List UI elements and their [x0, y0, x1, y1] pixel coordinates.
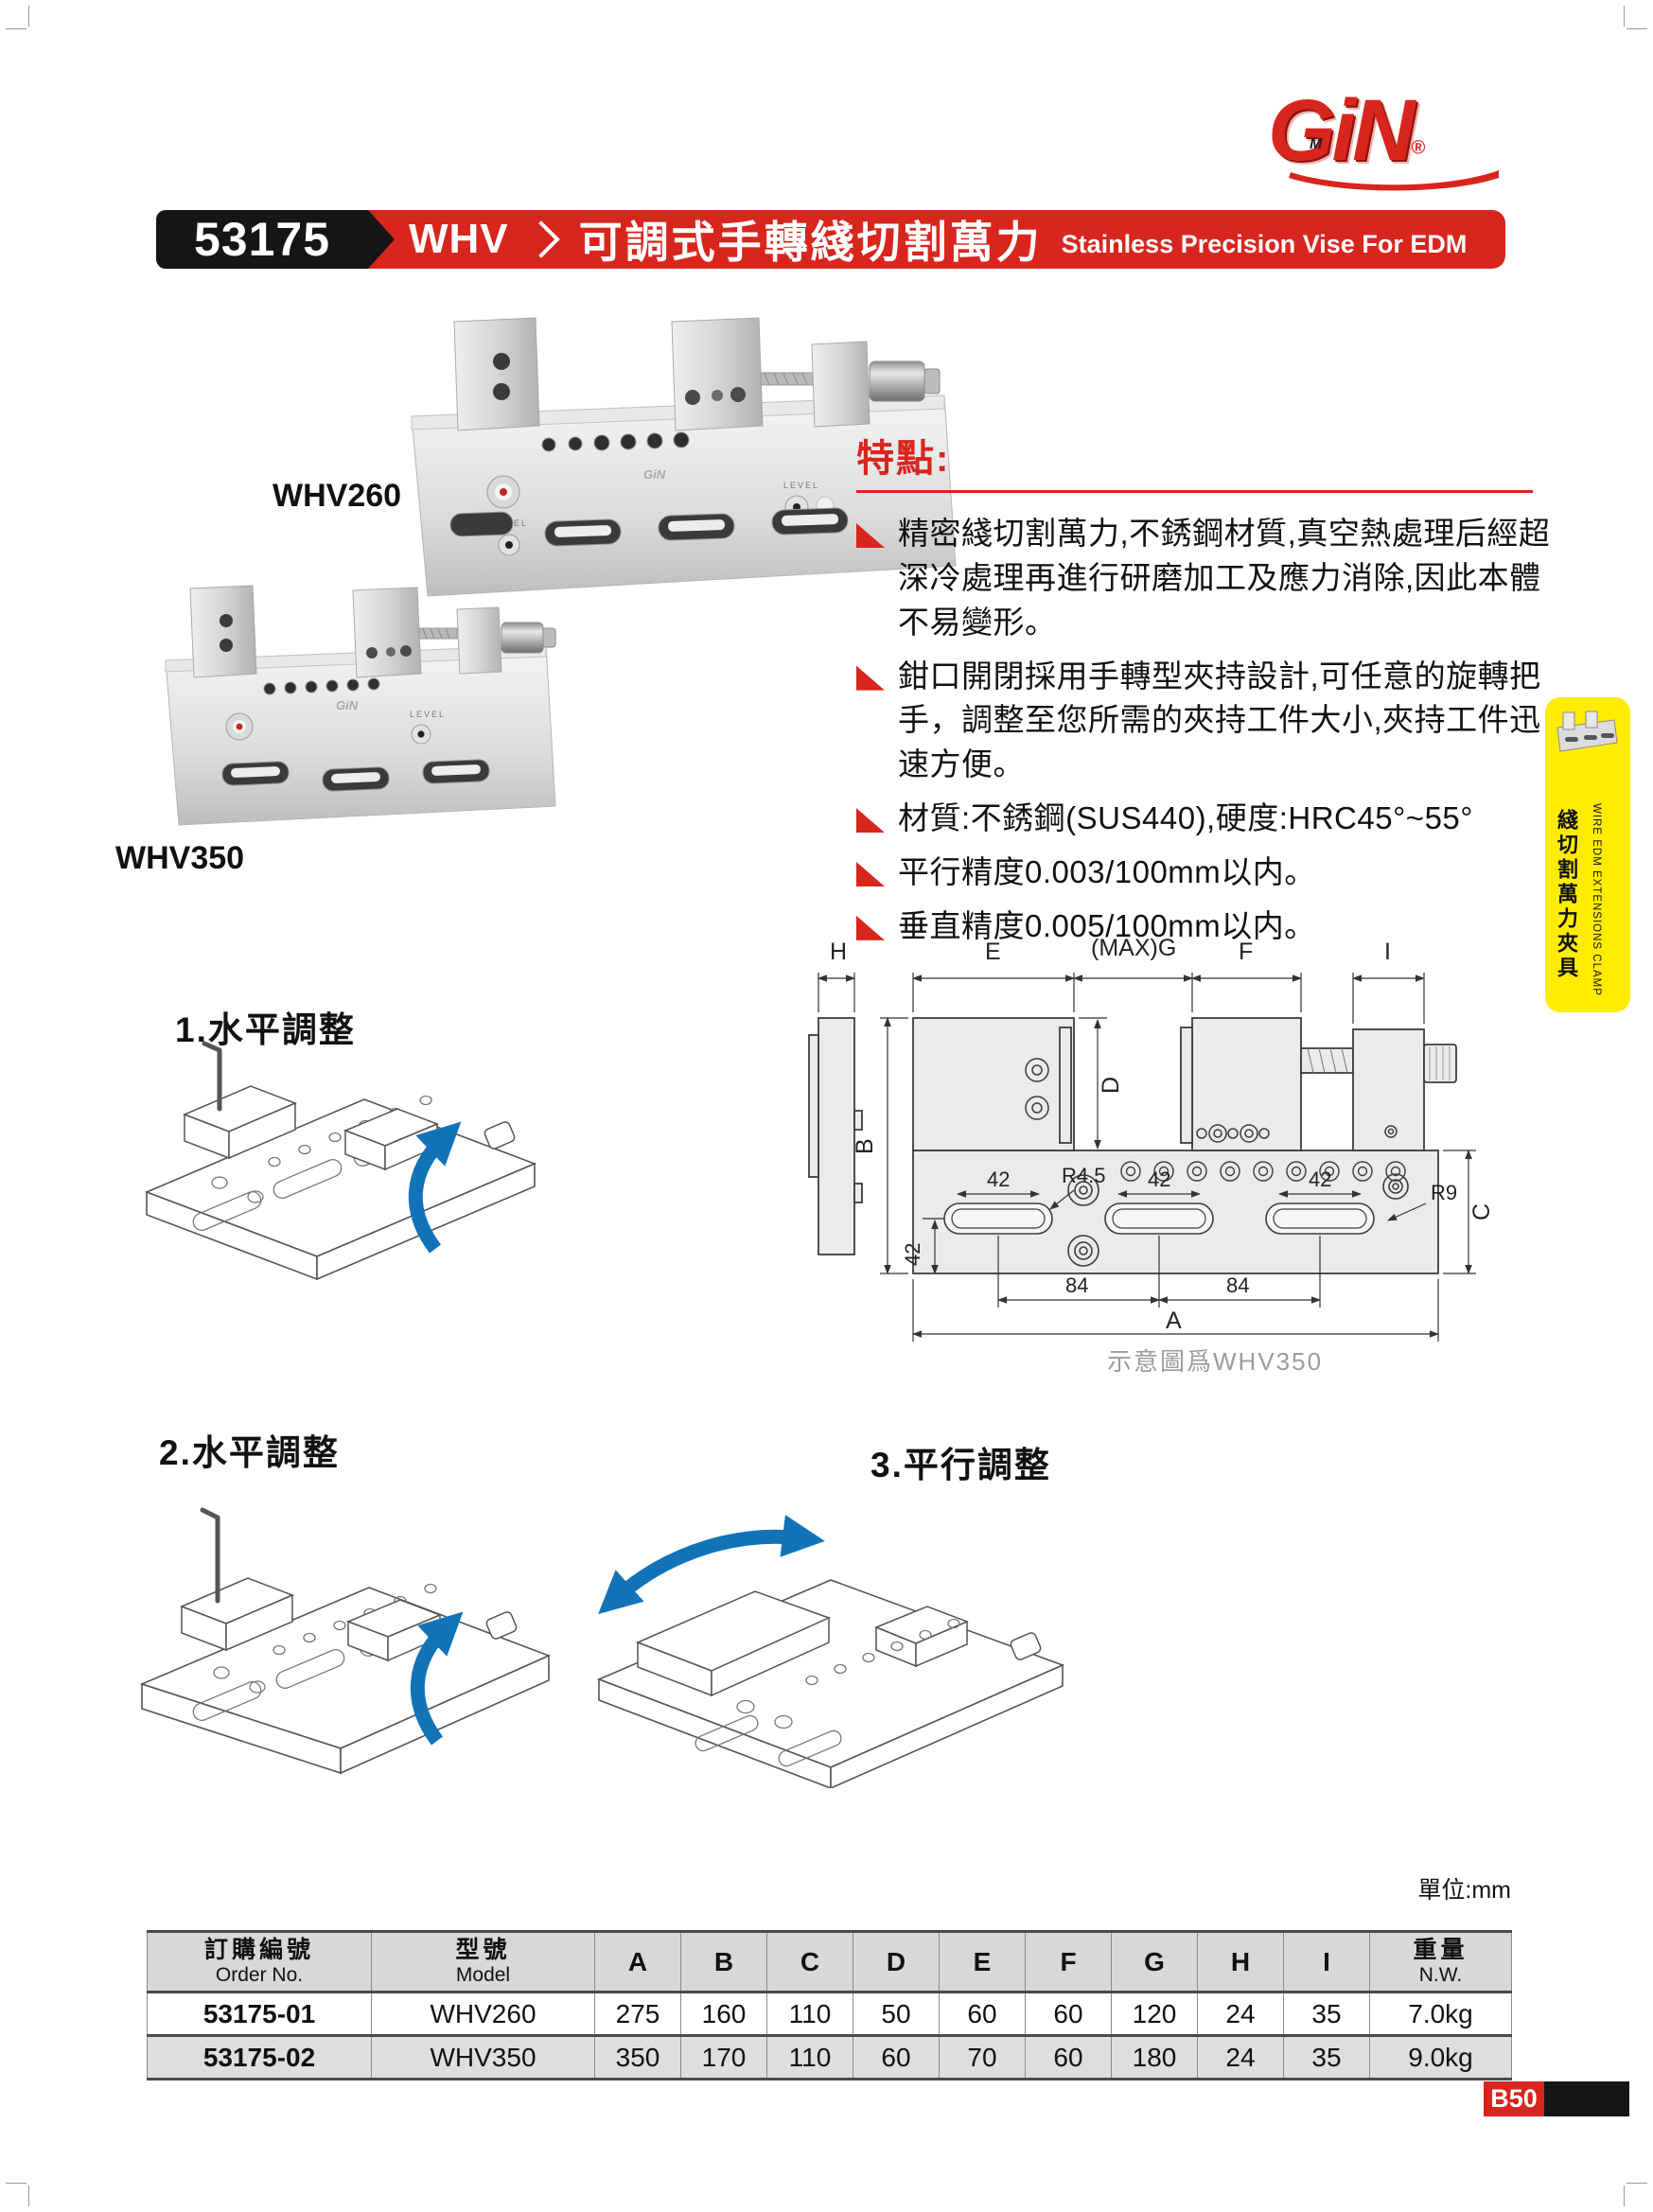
col-dim-g: G: [1112, 1932, 1198, 1993]
section-3-diagram: [575, 1476, 1086, 1788]
cell-dim: 35: [1284, 2036, 1370, 2080]
triangle-bullet-icon: [856, 666, 885, 691]
unit-label: 單位:mm: [1391, 1871, 1511, 1905]
svg-text:42: 42: [987, 1167, 1010, 1191]
cell-dim: 120: [1112, 1993, 1198, 2036]
col-dim-a: A: [595, 1932, 681, 1993]
svg-text:GiN: GiN: [643, 467, 666, 482]
logo-m-mark: M: [1310, 136, 1322, 153]
cell-dim: 160: [681, 1993, 767, 2036]
table-row: 53175-02 WHV350 350 170 110 60 70 60 180…: [148, 2036, 1512, 2080]
features-heading: 特點:: [856, 428, 1561, 483]
page-number-badge: B50: [1484, 2081, 1544, 2116]
crop-mark: [1627, 2183, 1647, 2184]
feature-text: 鉗口開閉採用手轉型夾持設計,可任意的旋轉把手，調整至您所需的夾持工件大小,夾持工…: [898, 655, 1561, 788]
cell-order: 53175-02: [148, 2036, 372, 2080]
crop-mark: [1627, 28, 1647, 29]
page-title-zh: 可調式手轉綫切割萬力: [579, 208, 1043, 271]
triangle-bullet-icon: [856, 808, 885, 833]
col-dim-c: C: [767, 1932, 853, 1993]
page-badge-bar: [1544, 2081, 1629, 2116]
cell-dim: 60: [1026, 2036, 1112, 2080]
feature-item: 平行精度0.003/100mm以内。: [856, 851, 1561, 895]
section-2-heading: 2.水平調整: [159, 1424, 340, 1475]
svg-text:(MAX)G: (MAX)G: [1091, 935, 1176, 961]
chevron-right-icon: [522, 220, 560, 258]
col-order-en: Order No.: [148, 1964, 371, 1987]
spec-table: 訂購編號 Order No. 型號 Model A B C D E F G H …: [147, 1930, 1512, 2080]
cell-dim: 60: [853, 2036, 940, 2080]
cell-dim: 35: [1284, 1993, 1370, 2036]
cell-order: 53175-01: [148, 1993, 372, 2036]
cell-dim: 24: [1198, 1993, 1284, 2036]
col-model-en: Model: [372, 1964, 594, 1987]
svg-text:C: C: [1468, 1203, 1495, 1220]
product-label-whv350: WHV350: [115, 840, 244, 877]
svg-text:D: D: [1098, 1077, 1124, 1094]
col-dim-f: F: [1026, 1932, 1112, 1993]
svg-text:84: 84: [1226, 1273, 1249, 1297]
feature-item: 精密綫切割萬力,不銹鋼材質,真空熱處理后經超深冷處理再進行研磨加工及應力消除,因…: [856, 512, 1561, 645]
cell-dim: 60: [1026, 1993, 1112, 2036]
side-tab-label-en: WIRE EDM EXTENSIONS CLAMP: [1591, 803, 1602, 996]
order-code: 53175: [194, 212, 330, 267]
series-code: WHV: [409, 216, 509, 263]
table-row: 53175-01 WHV260 275 160 110 50 60 60 120…: [148, 1993, 1512, 2036]
svg-text:84: 84: [1065, 1273, 1088, 1297]
col-dim-h: H: [1198, 1932, 1284, 1993]
col-weight-zh: 重量: [1370, 1937, 1511, 1964]
svg-text:H: H: [830, 939, 847, 965]
cell-dim: 50: [853, 1993, 940, 2036]
svg-text:E: E: [985, 939, 1001, 965]
brand-logo: GiN® M: [1268, 87, 1523, 201]
svg-text:LEVEL: LEVEL: [410, 710, 446, 719]
features-section: 特點: 精密綫切割萬力,不銹鋼材質,真空熱處理后經超深冷處理再進行研磨加工及應力…: [856, 428, 1561, 958]
crop-mark: [6, 28, 26, 29]
cell-dim: 60: [940, 1993, 1026, 2036]
triangle-bullet-icon: [856, 523, 885, 548]
crop-mark: [28, 2186, 29, 2206]
col-weight-en: N.W.: [1370, 1964, 1511, 1987]
product-label-whv260: WHV260: [273, 478, 401, 515]
col-dim-i: I: [1284, 1932, 1370, 1993]
col-dim-b: B: [681, 1932, 767, 1993]
svg-text:R4.5: R4.5: [1062, 1164, 1105, 1187]
logo-swoosh: [1287, 168, 1504, 193]
cell-dim: 350: [595, 2036, 681, 2080]
side-tab-thumbnail: [1554, 709, 1622, 754]
svg-text:42: 42: [1148, 1167, 1170, 1191]
svg-text:F: F: [1239, 939, 1253, 965]
cell-dim: 70: [940, 2036, 1026, 2080]
svg-text:B: B: [852, 1138, 878, 1154]
crop-mark: [28, 6, 29, 26]
section-2-diagram: [123, 1468, 568, 1781]
cell-dim: 180: [1112, 2036, 1198, 2080]
feature-item: 材質:不銹鋼(SUS440),硬度:HRC45°~55°: [856, 797, 1561, 841]
cell-model: WHV350: [372, 2036, 595, 2080]
registered-mark: ®: [1412, 138, 1426, 159]
cell-weight: 7.0kg: [1370, 1993, 1512, 2036]
header-banner: WHV 可調式手轉綫切割萬力 Stainless Precision Vise …: [156, 210, 1505, 269]
svg-text:42: 42: [1309, 1167, 1331, 1191]
dimension-drawing: H E (MAX)G F I B D C 42 R4.5 42 42 R9 42…: [729, 914, 1514, 1406]
order-code-block: 53175: [156, 210, 368, 269]
features-list: 精密綫切割萬力,不銹鋼材質,真空熱處理后經超深冷處理再進行研磨加工及應力消除,因…: [856, 512, 1561, 949]
col-dim-d: D: [853, 1932, 940, 1993]
svg-text:A: A: [1166, 1308, 1182, 1334]
col-order-zh: 訂購編號: [148, 1937, 371, 1964]
brand-logo-text: GiN: [1268, 82, 1412, 179]
col-weight: 重量 N.W.: [1370, 1932, 1512, 1993]
svg-text:示意圖爲WHV350: 示意圖爲WHV350: [1107, 1347, 1323, 1376]
features-divider: [856, 490, 1533, 493]
svg-text:LEVEL: LEVEL: [783, 481, 819, 490]
cell-dim: 24: [1198, 2036, 1284, 2080]
col-dim-e: E: [940, 1932, 1026, 1993]
header-banner-red: WHV 可調式手轉綫切割萬力 Stainless Precision Vise …: [274, 210, 1505, 269]
side-tab-label-zh: 綫切割萬力夾具: [1551, 809, 1581, 981]
feature-item: 鉗口開閉採用手轉型夾持設計,可任意的旋轉把手，調整至您所需的夾持工件大小,夾持工…: [856, 655, 1561, 788]
cell-model: WHV260: [372, 1993, 595, 2036]
svg-text:I: I: [1384, 939, 1391, 965]
feature-text: 材質:不銹鋼(SUS440),硬度:HRC45°~55°: [898, 797, 1473, 841]
catalog-page: { "logo": {"brand": "GiN", "reg": "®", "…: [0, 0, 1653, 2212]
cell-dim: 170: [681, 2036, 767, 2080]
cell-weight: 9.0kg: [1370, 2036, 1512, 2080]
col-order: 訂購編號 Order No.: [148, 1932, 372, 1993]
product-photo-whv350: LEVEL GiN: [137, 568, 582, 851]
cell-dim: 110: [767, 1993, 853, 2036]
cell-dim: 275: [595, 1993, 681, 2036]
svg-text:42: 42: [901, 1243, 924, 1266]
feature-text: 精密綫切割萬力,不銹鋼材質,真空熱處理后經超深冷處理再進行研磨加工及應力消除,因…: [898, 512, 1561, 645]
cell-dim: 110: [767, 2036, 853, 2080]
svg-text:GiN: GiN: [336, 698, 359, 712]
feature-text: 平行精度0.003/100mm以内。: [898, 851, 1316, 895]
page-title-en: Stainless Precision Vise For EDM: [1062, 230, 1468, 259]
triangle-bullet-icon: [856, 862, 885, 887]
spec-table-header-row: 訂購編號 Order No. 型號 Model A B C D E F G H …: [148, 1932, 1512, 1993]
crop-mark: [1624, 6, 1625, 26]
section-1-diagram: [132, 1041, 554, 1287]
svg-text:R9: R9: [1431, 1181, 1457, 1204]
col-model-zh: 型號: [372, 1937, 594, 1964]
order-code-arrow: [368, 210, 395, 269]
crop-mark: [6, 2183, 26, 2184]
side-tab: 綫切割萬力夾具 WIRE EDM EXTENSIONS CLAMP: [1545, 697, 1630, 1012]
col-model: 型號 Model: [372, 1932, 595, 1993]
crop-mark: [1624, 2186, 1625, 2206]
